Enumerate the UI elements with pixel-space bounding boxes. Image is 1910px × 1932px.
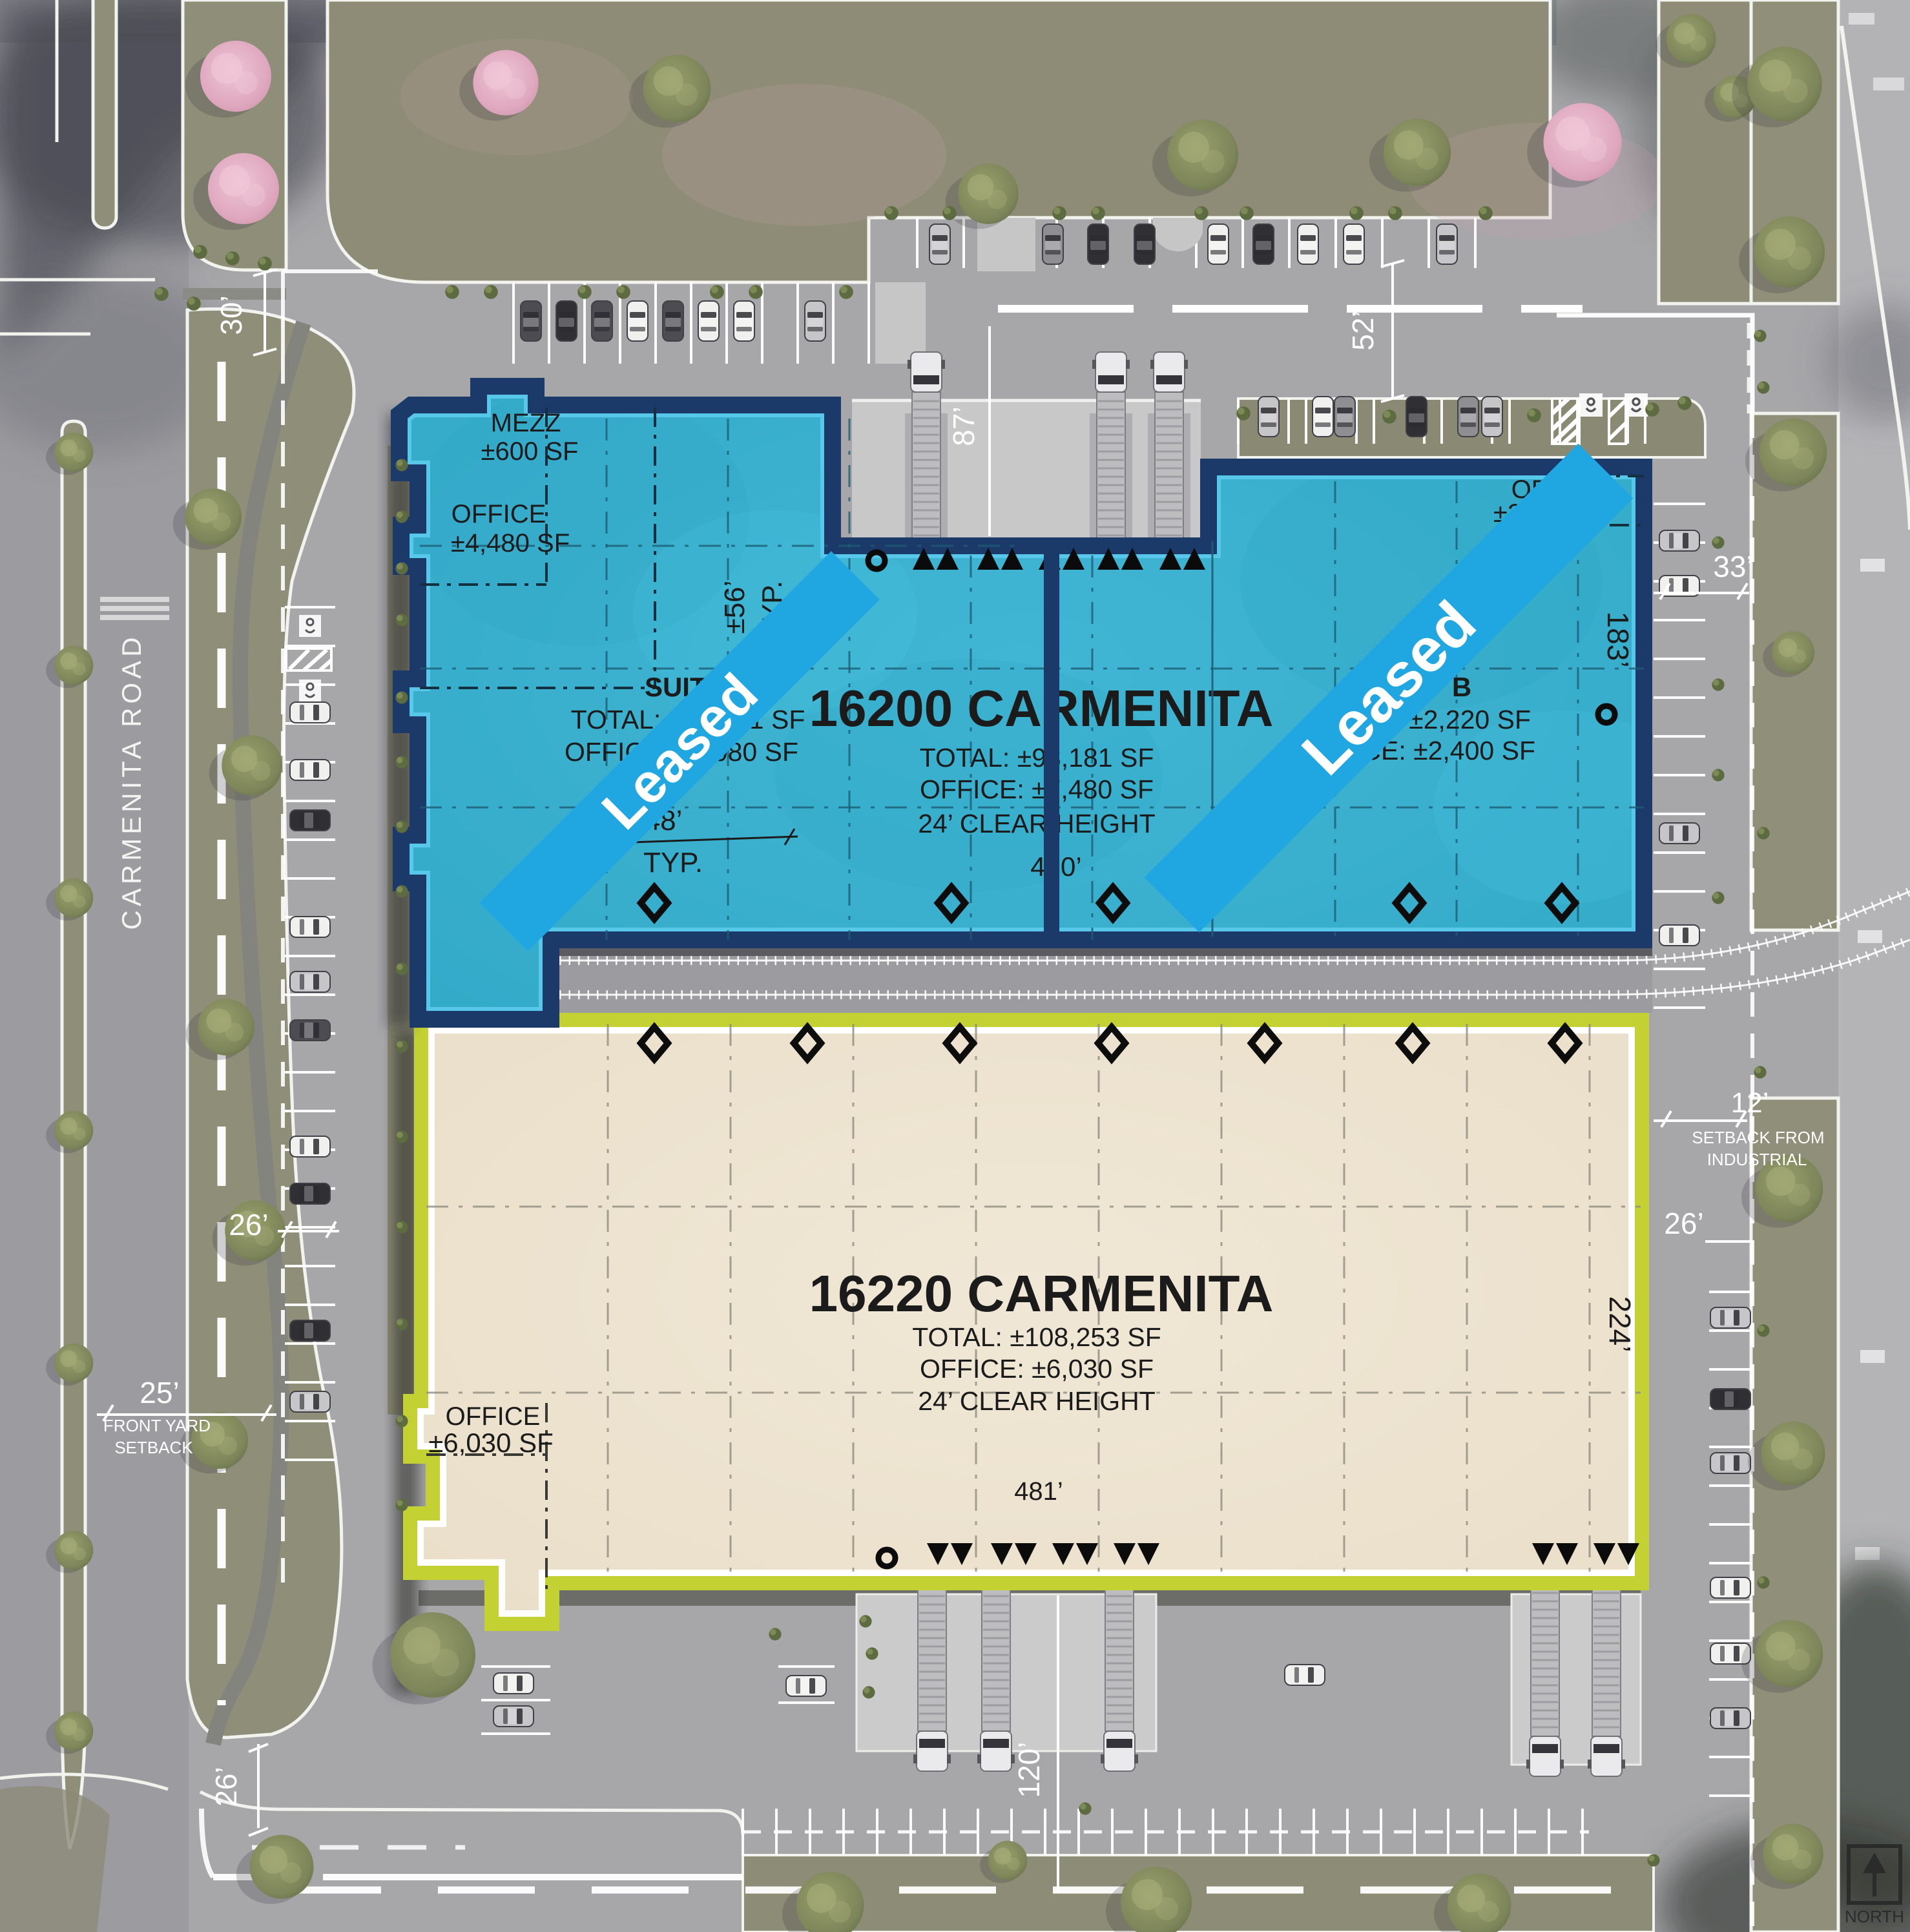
svg-text:25’: 25’ <box>140 1376 179 1409</box>
svg-text:SETBACK FROM: SETBACK FROM <box>1692 1128 1824 1147</box>
svg-text:±4,480 SF: ±4,480 SF <box>451 529 570 557</box>
svg-text:TOTAL: ±108,253 SF: TOTAL: ±108,253 SF <box>912 1322 1161 1352</box>
svg-text:OFFICE: ±6,030 SF: OFFICE: ±6,030 SF <box>920 1354 1154 1384</box>
svg-text:±56’: ±56’ <box>719 581 751 634</box>
svg-text:52’: 52’ <box>1346 311 1380 350</box>
svg-text:24’ CLEAR HEIGHT: 24’ CLEAR HEIGHT <box>918 809 1156 838</box>
svg-text:±6,030 SF: ±6,030 SF <box>428 1428 554 1458</box>
svg-text:16220 CARMENITA: 16220 CARMENITA <box>809 1265 1274 1322</box>
svg-text:NORTH: NORTH <box>1845 1907 1904 1926</box>
svg-text:INDUSTRIAL: INDUSTRIAL <box>1707 1150 1807 1169</box>
svg-text:CARMENITA ROAD: CARMENITA ROAD <box>116 634 147 930</box>
svg-text:26’: 26’ <box>1664 1207 1703 1240</box>
svg-text:120’: 120’ <box>1012 1742 1046 1798</box>
svg-text:26’: 26’ <box>209 1767 243 1806</box>
svg-text:87’: 87’ <box>947 406 981 446</box>
svg-text:183’: 183’ <box>1601 612 1635 668</box>
svg-text:TOTAL: ±93,181 SF: TOTAL: ±93,181 SF <box>920 743 1154 773</box>
svg-text:224’: 224’ <box>1603 1296 1637 1353</box>
svg-text:24’ CLEAR HEIGHT: 24’ CLEAR HEIGHT <box>918 1386 1156 1416</box>
svg-text:FRONT YARD: FRONT YARD <box>103 1416 211 1435</box>
svg-text:OFFICE: OFFICE <box>452 500 546 528</box>
svg-text:481’: 481’ <box>1014 1477 1063 1506</box>
svg-text:30’: 30’ <box>214 295 248 335</box>
svg-text:26’: 26’ <box>229 1208 268 1241</box>
svg-text:12’: 12’ <box>1731 1087 1769 1119</box>
svg-text:OFFICE: OFFICE <box>446 1402 541 1431</box>
svg-text:SETBACK: SETBACK <box>114 1438 193 1457</box>
svg-text:MEZZ: MEZZ <box>491 409 561 437</box>
svg-text:16200 CARMENITA: 16200 CARMENITA <box>809 680 1274 737</box>
svg-text:TYP.: TYP. <box>643 847 703 878</box>
svg-text:OFFICE: ±7,480 SF: OFFICE: ±7,480 SF <box>920 774 1154 804</box>
svg-text:33’: 33’ <box>1713 550 1752 583</box>
svg-text:±600 SF: ±600 SF <box>481 437 579 466</box>
